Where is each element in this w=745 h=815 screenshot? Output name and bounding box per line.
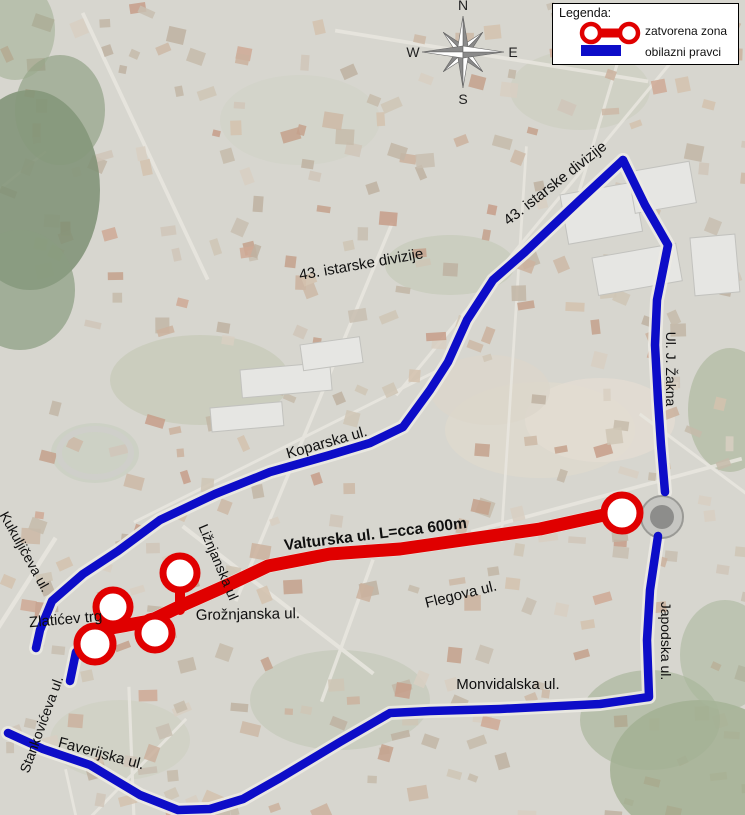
legend: Legenda: zatvorena zona obilazni pravci [552, 3, 739, 65]
legend-title: Legenda: [559, 6, 611, 20]
street-label-ul-j-zakna: Ul. J. Žakna [663, 332, 679, 407]
compass-letter-W: W [406, 44, 420, 60]
street-label-monvidalska: Monvidalska ul. [456, 676, 559, 693]
compass-letter-N: N [458, 0, 468, 13]
compass-letter-E: E [508, 44, 517, 60]
roundabout [641, 496, 683, 538]
closed-zone-symbol [579, 20, 641, 46]
map-canvas: NSWE43. istarske divizije43. istarske di… [0, 0, 745, 815]
legend-label-detour: obilazni pravci [645, 45, 721, 59]
street-label-groznjanska: Grožnjanska ul. [196, 605, 300, 624]
detour-symbol [581, 45, 621, 57]
compass-letter-S: S [458, 91, 467, 107]
traffic-closure-map: NSWE43. istarske divizije43. istarske di… [0, 0, 745, 815]
legend-label-closed-zone: zatvorena zona [645, 24, 727, 38]
street-label-japodska: Japodska ul. [658, 602, 674, 681]
